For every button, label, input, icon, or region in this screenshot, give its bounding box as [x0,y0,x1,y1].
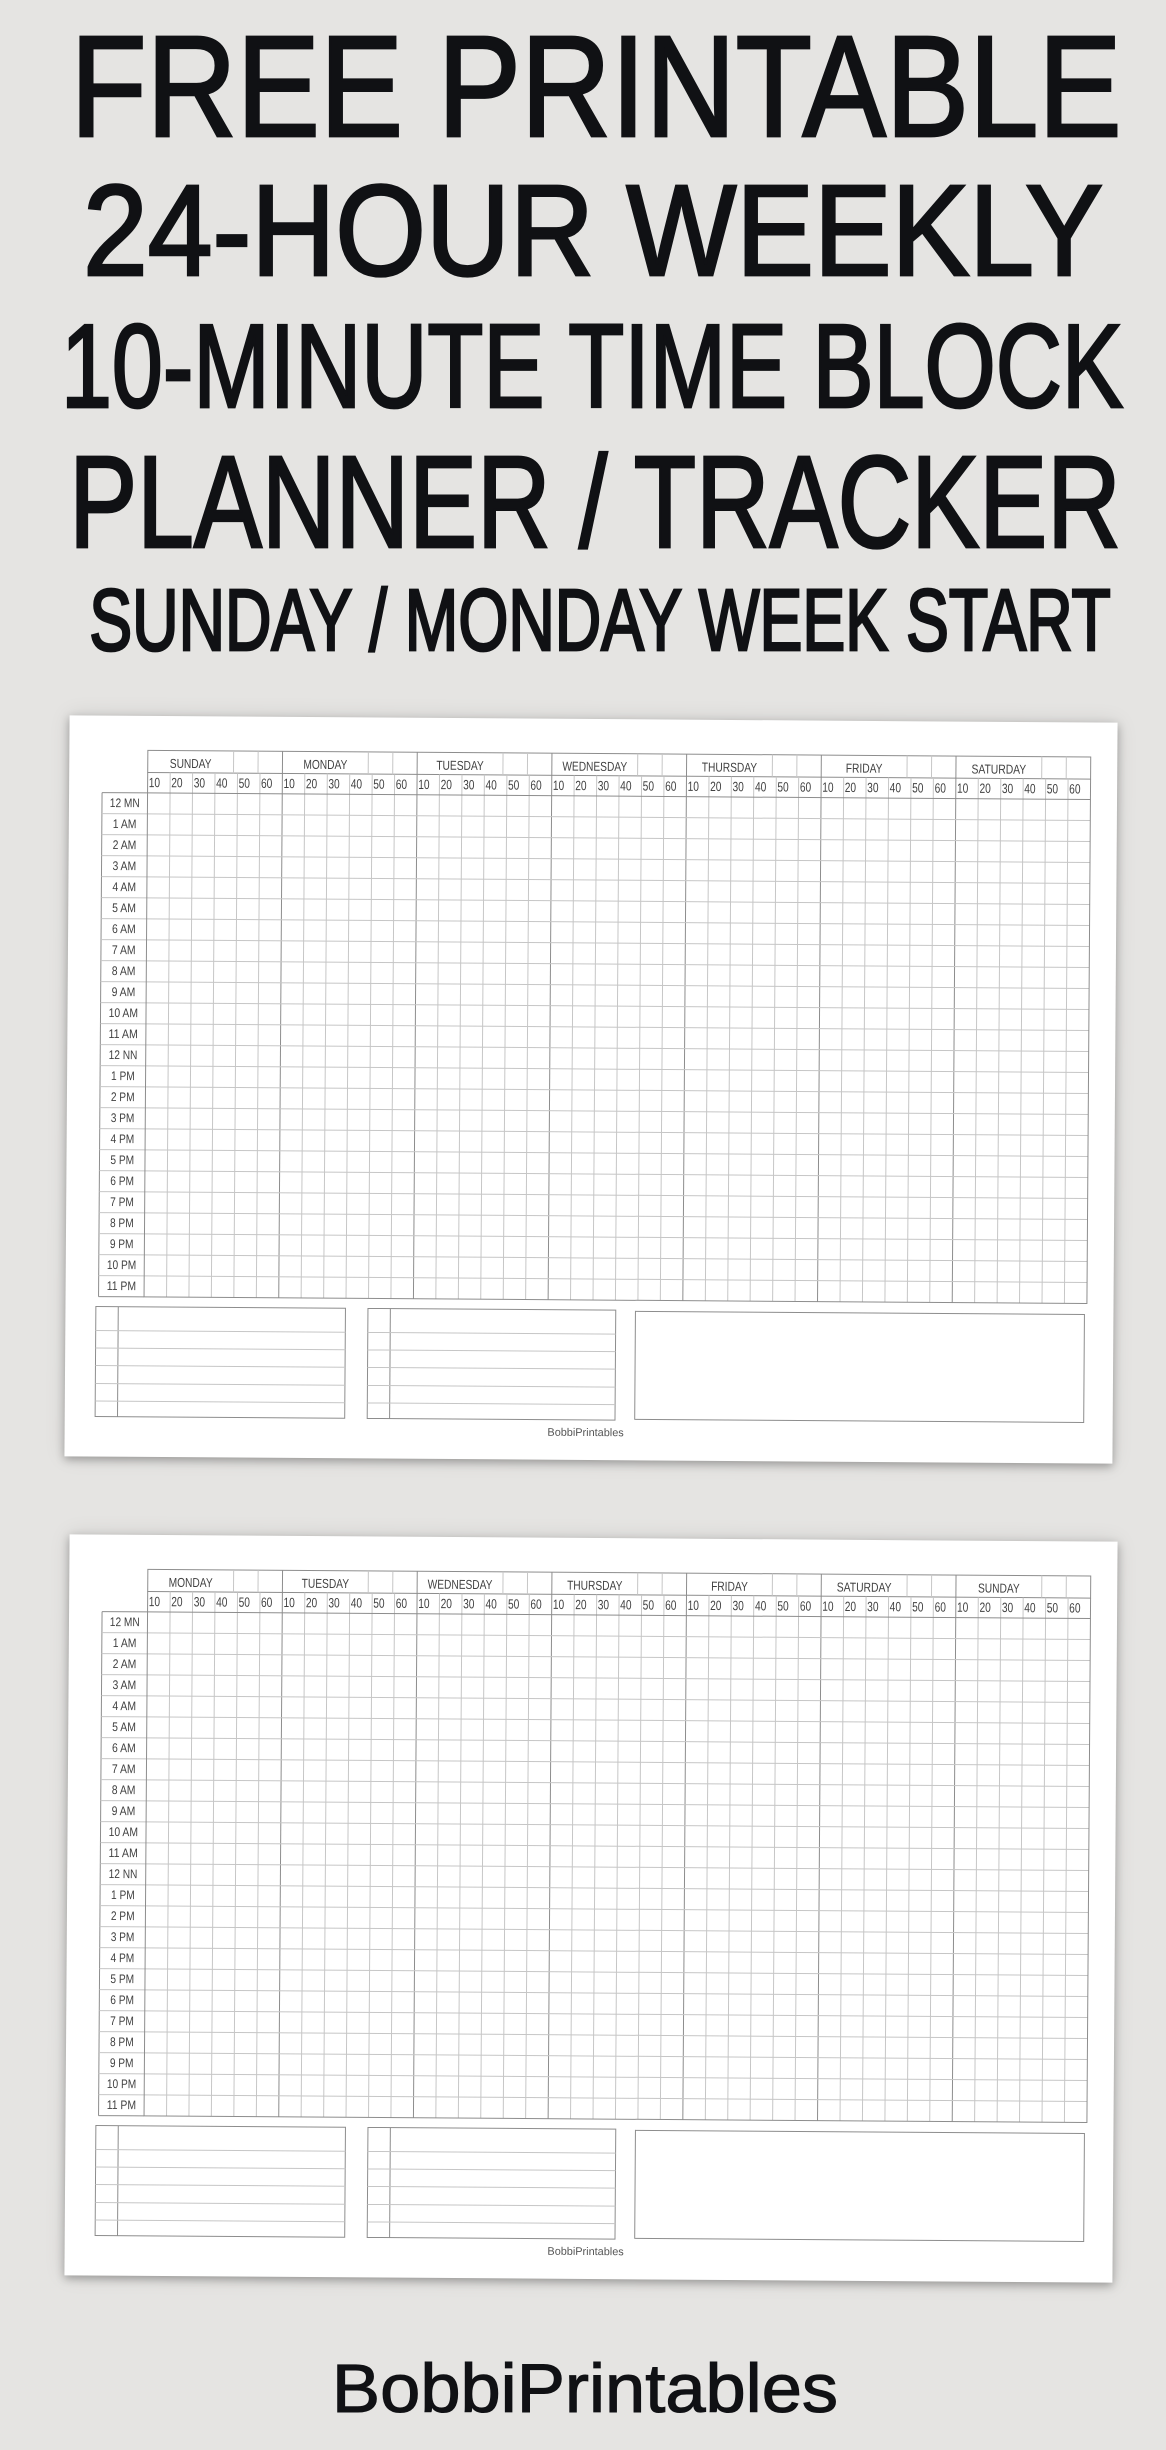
svg-text:11 AM: 11 AM [108,1027,137,1041]
svg-text:10: 10 [283,776,294,791]
svg-text:20: 20 [171,775,182,790]
svg-text:BobbiPrintables: BobbiPrintables [547,1427,624,1440]
svg-text:5 PM: 5 PM [110,1153,134,1167]
svg-text:11 AM: 11 AM [108,1846,137,1860]
svg-text:10: 10 [957,781,968,796]
svg-text:SATURDAY: SATURDAY [837,1580,892,1595]
svg-text:WEDNESDAY: WEDNESDAY [562,759,627,774]
svg-text:10 AM: 10 AM [109,1006,138,1020]
svg-text:40: 40 [1024,781,1035,796]
svg-text:30: 30 [194,775,205,790]
svg-text:2 PM: 2 PM [111,1909,135,1923]
svg-text:20: 20 [171,1594,182,1609]
svg-text:SATURDAY: SATURDAY [971,761,1026,776]
svg-text:2 AM: 2 AM [113,838,137,852]
svg-text:8 AM: 8 AM [112,964,136,978]
svg-text:FRIDAY: FRIDAY [711,1579,748,1594]
svg-text:50: 50 [643,1598,654,1613]
svg-text:10: 10 [688,779,699,794]
svg-text:3 AM: 3 AM [112,1678,136,1692]
svg-text:60: 60 [800,780,811,795]
svg-text:9 AM: 9 AM [112,985,136,999]
svg-text:40: 40 [351,777,362,792]
svg-text:1 PM: 1 PM [111,1069,135,1083]
svg-text:10 AM: 10 AM [109,1825,138,1839]
svg-text:30: 30 [598,1597,609,1612]
svg-text:10: 10 [553,778,564,793]
svg-text:3 AM: 3 AM [112,859,136,873]
svg-text:20: 20 [845,1599,856,1614]
svg-text:1 AM: 1 AM [113,817,137,831]
svg-text:10: 10 [822,1599,833,1614]
svg-text:FRIDAY: FRIDAY [846,761,883,776]
svg-text:60: 60 [530,1597,541,1612]
svg-text:9 AM: 9 AM [112,1804,136,1818]
svg-text:40: 40 [890,780,901,795]
svg-text:40: 40 [485,1596,496,1611]
svg-text:20: 20 [710,779,721,794]
svg-text:6 PM: 6 PM [110,1993,134,2007]
svg-text:10: 10 [822,780,833,795]
svg-text:60: 60 [261,776,272,791]
svg-text:10: 10 [418,1596,429,1611]
svg-text:30: 30 [194,1594,205,1609]
svg-text:12 MN: 12 MN [110,796,140,810]
svg-text:60: 60 [1069,782,1080,797]
svg-text:10: 10 [418,777,429,792]
svg-text:50: 50 [912,780,923,795]
svg-text:20: 20 [575,1597,586,1612]
svg-text:60: 60 [1069,1601,1080,1616]
svg-text:20: 20 [710,1598,721,1613]
svg-text:10 PM: 10 PM [107,2077,136,2091]
svg-text:12 NN: 12 NN [109,1867,138,1881]
svg-text:11 PM: 11 PM [107,1279,136,1293]
svg-text:20: 20 [441,777,452,792]
svg-text:60: 60 [665,1598,676,1613]
svg-text:5 AM: 5 AM [112,901,136,915]
svg-text:40: 40 [620,1597,631,1612]
svg-text:10: 10 [688,1598,699,1613]
svg-text:50: 50 [1047,781,1058,796]
svg-text:20: 20 [306,1595,317,1610]
svg-text:50: 50 [508,778,519,793]
svg-text:60: 60 [935,781,946,796]
svg-text:50: 50 [1047,1600,1058,1615]
svg-text:9 PM: 9 PM [110,2056,134,2070]
svg-text:40: 40 [216,776,227,791]
svg-text:50: 50 [643,779,654,794]
svg-text:8 AM: 8 AM [112,1783,136,1797]
svg-text:40: 40 [755,1598,766,1613]
svg-text:THURSDAY: THURSDAY [567,1578,623,1593]
svg-text:20: 20 [441,1596,452,1611]
svg-text:20: 20 [979,781,990,796]
svg-text:40: 40 [620,778,631,793]
svg-text:SUNDAY: SUNDAY [978,1580,1020,1595]
svg-text:50: 50 [239,776,250,791]
svg-text:8 PM: 8 PM [110,2035,134,2049]
svg-text:MONDAY: MONDAY [169,1575,213,1590]
svg-text:30: 30 [598,778,609,793]
svg-text:30: 30 [867,780,878,795]
svg-text:50: 50 [777,779,788,794]
svg-text:3 PM: 3 PM [111,1930,135,1944]
svg-text:30: 30 [867,1599,878,1614]
svg-text:TUESDAY: TUESDAY [302,1576,350,1591]
svg-text:50: 50 [777,1598,788,1613]
svg-text:10: 10 [149,1594,160,1609]
svg-text:60: 60 [396,777,407,792]
svg-text:1 AM: 1 AM [113,1636,137,1650]
svg-text:12 NN: 12 NN [109,1048,138,1062]
svg-text:6 PM: 6 PM [110,1174,134,1188]
svg-text:WEDNESDAY: WEDNESDAY [428,1577,493,1592]
svg-text:7 AM: 7 AM [112,943,136,957]
svg-text:40: 40 [485,777,496,792]
svg-text:6 AM: 6 AM [112,1741,136,1755]
svg-text:4 AM: 4 AM [112,1699,136,1713]
svg-text:60: 60 [935,1600,946,1615]
svg-text:10: 10 [957,1600,968,1615]
svg-text:30: 30 [328,776,339,791]
svg-text:7 PM: 7 PM [110,1195,134,1209]
svg-text:5 AM: 5 AM [112,1720,136,1734]
svg-text:20: 20 [306,776,317,791]
svg-text:40: 40 [351,1596,362,1611]
svg-text:10 PM: 10 PM [107,1258,136,1272]
svg-text:60: 60 [665,779,676,794]
svg-text:30: 30 [1002,1600,1013,1615]
svg-text:50: 50 [373,777,384,792]
svg-text:10: 10 [553,1597,564,1612]
svg-text:5 PM: 5 PM [110,1972,134,1986]
svg-text:8 PM: 8 PM [110,1216,134,1230]
svg-text:20: 20 [979,1600,990,1615]
svg-text:4 AM: 4 AM [112,880,136,894]
svg-text:2 AM: 2 AM [113,1657,137,1671]
svg-text:50: 50 [239,1595,250,1610]
svg-text:6 AM: 6 AM [112,922,136,936]
svg-text:50: 50 [373,1596,384,1611]
svg-text:40: 40 [1024,1600,1035,1615]
svg-text:4 PM: 4 PM [111,1132,135,1146]
svg-text:BobbiPrintables: BobbiPrintables [547,2246,624,2259]
svg-text:7 AM: 7 AM [112,1762,136,1776]
svg-text:40: 40 [216,1595,227,1610]
svg-text:40: 40 [890,1599,901,1614]
svg-text:60: 60 [261,1595,272,1610]
svg-text:30: 30 [1002,781,1013,796]
svg-text:12 MN: 12 MN [110,1615,140,1629]
svg-text:20: 20 [845,780,856,795]
svg-text:20: 20 [575,778,586,793]
svg-text:9 PM: 9 PM [110,1237,134,1251]
svg-text:40: 40 [755,779,766,794]
svg-text:30: 30 [463,777,474,792]
svg-text:30: 30 [732,1598,743,1613]
svg-text:60: 60 [800,1599,811,1614]
svg-text:50: 50 [508,1597,519,1612]
svg-text:11 PM: 11 PM [107,2098,136,2112]
svg-text:3 PM: 3 PM [111,1111,135,1125]
svg-text:50: 50 [912,1599,923,1614]
svg-text:MONDAY: MONDAY [303,757,347,772]
svg-text:THURSDAY: THURSDAY [702,760,758,775]
svg-text:7 PM: 7 PM [110,2014,134,2028]
svg-text:10: 10 [283,1595,294,1610]
svg-text:30: 30 [463,1596,474,1611]
svg-text:60: 60 [530,778,541,793]
svg-text:TUESDAY: TUESDAY [436,758,484,773]
svg-text:60: 60 [396,1596,407,1611]
svg-text:4 PM: 4 PM [111,1951,135,1965]
svg-text:2 PM: 2 PM [111,1090,135,1104]
svg-text:30: 30 [732,779,743,794]
svg-text:SUNDAY: SUNDAY [170,756,212,771]
svg-text:10: 10 [149,775,160,790]
svg-text:30: 30 [328,1595,339,1610]
svg-text:1 PM: 1 PM [111,1888,135,1902]
